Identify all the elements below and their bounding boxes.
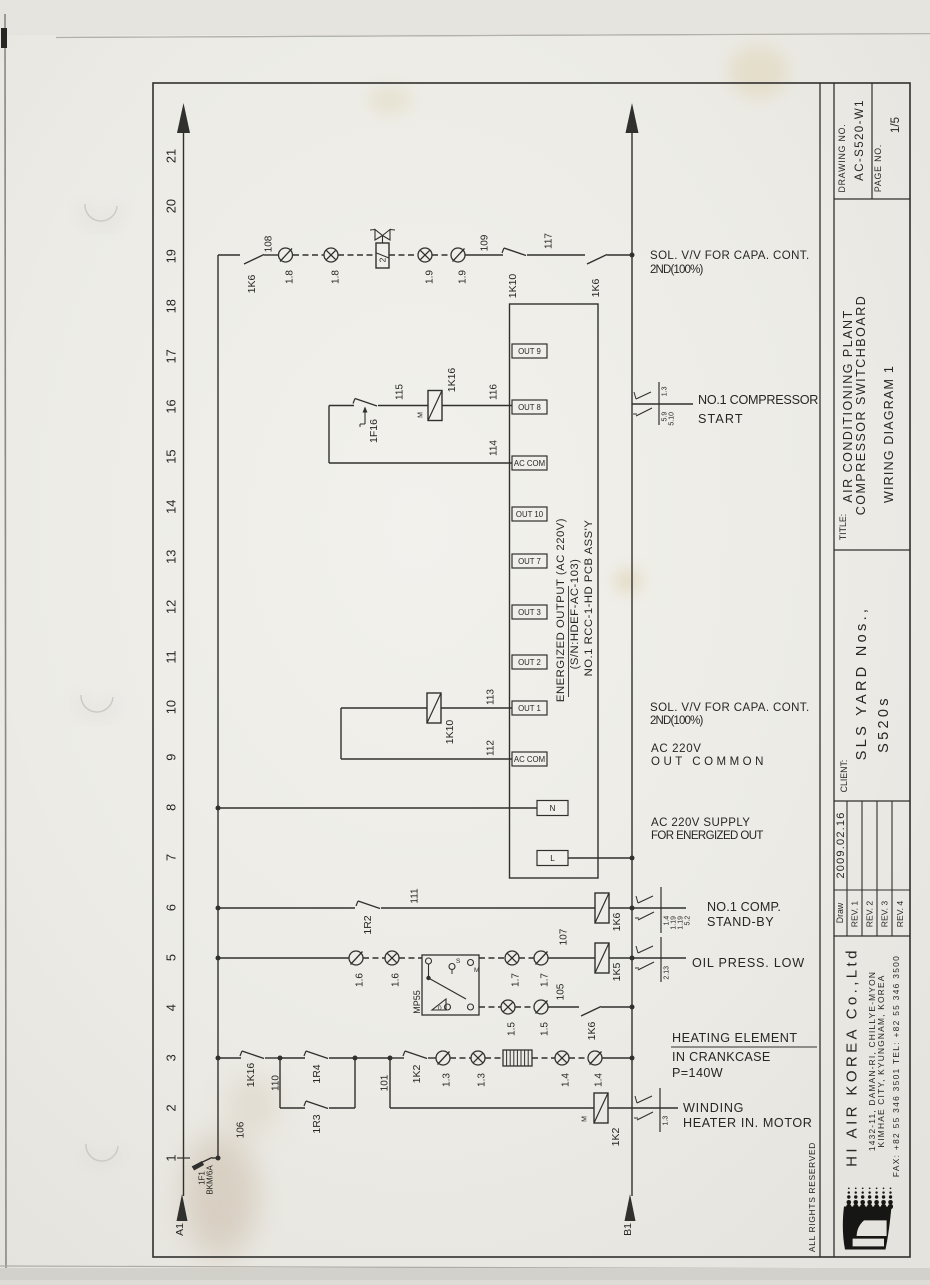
svg-text:L: L xyxy=(550,854,555,863)
svg-text:5.2: 5.2 xyxy=(685,916,692,926)
svg-text:A1: A1 xyxy=(174,1223,186,1236)
svg-text:WIRING DIAGRAM 1: WIRING DIAGRAM 1 xyxy=(882,365,896,503)
svg-text:1K5: 1K5 xyxy=(611,963,623,982)
svg-text:REV. 3: REV. 3 xyxy=(880,901,890,928)
svg-text:1.7: 1.7 xyxy=(511,973,522,987)
svg-text:1/5: 1/5 xyxy=(890,117,902,133)
svg-text:OUT 2: OUT 2 xyxy=(518,658,541,667)
svg-text:AC 220V: AC 220V xyxy=(651,743,702,755)
svg-text:117: 117 xyxy=(544,233,555,249)
svg-text:1.3: 1.3 xyxy=(442,1073,453,1087)
svg-text:NO.1 COMP.: NO.1 COMP. xyxy=(707,900,781,914)
svg-text:M: M xyxy=(474,967,479,974)
svg-text:1.19: 1.19 xyxy=(671,916,678,930)
svg-text:1R4: 1R4 xyxy=(311,1064,323,1083)
svg-text:1.3: 1.3 xyxy=(663,1116,670,1126)
svg-text:105: 105 xyxy=(556,983,567,1000)
svg-text:REV. 2: REV. 2 xyxy=(865,901,875,928)
svg-text:IN CRANKCASE: IN CRANKCASE xyxy=(672,1050,771,1064)
svg-text:7: 7 xyxy=(164,854,179,861)
svg-text:1.5: 1.5 xyxy=(540,1022,551,1036)
svg-text:1F16: 1F16 xyxy=(368,419,380,443)
svg-text:REV. 1: REV. 1 xyxy=(850,901,860,928)
svg-text:SOL. V/V FOR CAPA. CONT.: SOL. V/V FOR CAPA. CONT. xyxy=(650,702,810,714)
svg-text:1.6: 1.6 xyxy=(355,973,366,987)
svg-text:13: 13 xyxy=(164,550,179,564)
svg-text:12: 12 xyxy=(164,600,179,614)
svg-text:FOR ENERGIZED OUT: FOR ENERGIZED OUT xyxy=(651,830,763,842)
svg-text:P=140W: P=140W xyxy=(672,1066,723,1080)
svg-text:START: START xyxy=(698,412,744,426)
svg-text:1.7: 1.7 xyxy=(540,973,551,987)
svg-text:COMPRESSOR SWITCHBOARD: COMPRESSOR SWITCHBOARD xyxy=(854,295,868,516)
svg-text:WINDING: WINDING xyxy=(683,1101,744,1115)
svg-text:FAX: +82 55 346 3501 TEL: +82: FAX: +82 55 346 3501 TEL: +82 55 346 350… xyxy=(891,955,901,1177)
svg-text:116: 116 xyxy=(489,384,500,400)
svg-text:AC-S520-W1: AC-S520-W1 xyxy=(854,99,866,181)
svg-text:1K6: 1K6 xyxy=(590,279,602,298)
svg-text:114: 114 xyxy=(489,440,500,456)
svg-text:1.19: 1.19 xyxy=(678,916,685,930)
svg-text:1: 1 xyxy=(164,1154,179,1161)
svg-text:OUT 1: OUT 1 xyxy=(518,704,541,713)
svg-text:OUT 10: OUT 10 xyxy=(516,510,544,519)
svg-text:2ND(100%): 2ND(100%) xyxy=(650,264,703,276)
svg-text:1.9: 1.9 xyxy=(458,270,469,284)
svg-text:S: S xyxy=(456,958,461,965)
svg-text:111: 111 xyxy=(410,888,421,904)
svg-text:1.8: 1.8 xyxy=(285,270,296,284)
svg-text:1R2: 1R2 xyxy=(362,915,374,934)
svg-text:AC 220V SUPPLY: AC 220V SUPPLY xyxy=(651,817,750,829)
svg-text:1R3: 1R3 xyxy=(311,1114,323,1133)
svg-text:M: M xyxy=(582,1116,589,1122)
svg-text:OUT 7: OUT 7 xyxy=(518,557,541,566)
svg-text:TITLE:: TITLE: xyxy=(838,514,848,540)
svg-text:KIMHAE CITY, KYUNGNAM, KOREA: KIMHAE CITY, KYUNGNAM, KOREA xyxy=(876,974,886,1147)
svg-text:1K2: 1K2 xyxy=(610,1128,622,1147)
svg-text:1.4: 1.4 xyxy=(594,1073,605,1087)
svg-text:AC COM: AC COM xyxy=(514,459,545,468)
svg-text:113: 113 xyxy=(486,689,497,705)
svg-text:MP55: MP55 xyxy=(412,990,422,1014)
svg-text:1K10: 1K10 xyxy=(507,274,519,299)
svg-text:11: 11 xyxy=(164,650,179,663)
svg-text:1.4: 1.4 xyxy=(561,1073,572,1087)
svg-text:1.4: 1.4 xyxy=(664,916,671,926)
svg-text:1.5: 1.5 xyxy=(507,1022,518,1036)
svg-text:1K6: 1K6 xyxy=(586,1022,598,1041)
svg-text:2: 2 xyxy=(378,257,388,262)
svg-text:5: 5 xyxy=(164,954,179,961)
svg-text:16: 16 xyxy=(164,399,179,413)
svg-text:1.8: 1.8 xyxy=(331,270,342,284)
svg-text:NO.1 RCC-1-HD PCB ASS'Y: NO.1 RCC-1-HD PCB ASS'Y xyxy=(583,520,595,677)
svg-text:OUT 9: OUT 9 xyxy=(518,347,541,356)
svg-text:REV. 4: REV. 4 xyxy=(895,901,905,928)
svg-text:N: N xyxy=(550,804,556,813)
svg-text:1.9: 1.9 xyxy=(425,270,436,284)
svg-text:1K6: 1K6 xyxy=(611,913,623,932)
svg-text:8: 8 xyxy=(164,804,179,811)
svg-text:1K2: 1K2 xyxy=(411,1065,423,1084)
svg-text:15: 15 xyxy=(164,449,179,463)
svg-text:6: 6 xyxy=(164,904,179,911)
svg-text:14: 14 xyxy=(164,500,179,514)
svg-text:OUT COMMON: OUT COMMON xyxy=(651,756,767,768)
svg-text:115: 115 xyxy=(395,384,406,400)
svg-text:1.6: 1.6 xyxy=(391,973,402,987)
svg-text:5.10: 5.10 xyxy=(669,412,676,426)
svg-text:BKM/6A: BKM/6A xyxy=(206,1165,215,1195)
svg-text:1K16: 1K16 xyxy=(245,1063,257,1088)
svg-text:ALL RIGHTS RESERVED: ALL RIGHTS RESERVED xyxy=(807,1142,817,1252)
svg-text:112: 112 xyxy=(486,740,497,756)
svg-text:OUT 8: OUT 8 xyxy=(518,403,541,412)
svg-text:SOL. V/V FOR CAPA. CONT.: SOL. V/V FOR CAPA. CONT. xyxy=(650,250,810,262)
svg-text:CLIENT:: CLIENT: xyxy=(839,760,849,793)
svg-text:101: 101 xyxy=(380,1074,391,1091)
svg-text:1.3: 1.3 xyxy=(477,1073,488,1087)
svg-text:OIL PRESS. LOW: OIL PRESS. LOW xyxy=(692,956,805,970)
svg-text:107: 107 xyxy=(559,928,570,945)
svg-text:SLS YARD Nos.,: SLS YARD Nos., xyxy=(854,606,870,760)
svg-text:S520s: S520s xyxy=(876,695,892,753)
svg-text:9: 9 xyxy=(164,754,179,761)
svg-text:DRAWING NO.: DRAWING NO. xyxy=(837,123,847,192)
svg-text:19: 19 xyxy=(164,249,179,263)
svg-text:HEATER IN. MOTOR: HEATER IN. MOTOR xyxy=(683,1116,812,1130)
svg-text:17: 17 xyxy=(164,349,179,363)
svg-text:2ND(100%): 2ND(100%) xyxy=(650,715,703,727)
svg-text:PAGE NO.: PAGE NO. xyxy=(873,144,883,192)
svg-text:0: 0 xyxy=(438,1005,442,1012)
svg-text:1K10: 1K10 xyxy=(444,720,456,745)
svg-text:109: 109 xyxy=(480,234,491,251)
svg-text:18: 18 xyxy=(164,299,179,313)
svg-text:2: 2 xyxy=(164,1104,179,1111)
svg-text:108: 108 xyxy=(264,235,275,252)
svg-text:M: M xyxy=(418,412,425,418)
svg-text:106: 106 xyxy=(236,1121,247,1138)
svg-text:B1: B1 xyxy=(622,1223,634,1236)
svg-text:4: 4 xyxy=(164,1004,179,1011)
svg-text:AC COM: AC COM xyxy=(514,755,545,764)
svg-text:21: 21 xyxy=(164,149,179,163)
svg-text:10: 10 xyxy=(164,700,179,714)
svg-text:1K6: 1K6 xyxy=(246,275,258,294)
svg-text:1.3: 1.3 xyxy=(662,386,669,396)
svg-text:(S/N:HDEF-AC-103): (S/N:HDEF-AC-103) xyxy=(569,559,581,670)
svg-text:3: 3 xyxy=(164,1054,179,1061)
svg-text:5.9: 5.9 xyxy=(662,412,669,422)
svg-text:1K16: 1K16 xyxy=(446,368,458,393)
svg-text:HI AIR KOREA Co.,Ltd: HI AIR KOREA Co.,Ltd xyxy=(844,947,861,1167)
svg-text:ENERGIZED OUTPUT (AC 220V): ENERGIZED OUTPUT (AC 220V) xyxy=(555,518,567,702)
svg-text:HEATING ELEMENT: HEATING ELEMENT xyxy=(672,1031,798,1045)
svg-text:20: 20 xyxy=(164,199,179,213)
svg-text:AIR CONDITIONING PLANT: AIR CONDITIONING PLANT xyxy=(841,309,855,502)
svg-text:STAND-BY: STAND-BY xyxy=(707,915,774,929)
svg-text:2009.02.16: 2009.02.16 xyxy=(835,811,847,878)
svg-text:NO.1 COMPRESSOR: NO.1 COMPRESSOR xyxy=(698,393,818,407)
svg-text:OUT 3: OUT 3 xyxy=(518,608,541,617)
svg-text:2.13: 2.13 xyxy=(664,966,671,980)
svg-text:Draw: Draw xyxy=(835,902,845,923)
